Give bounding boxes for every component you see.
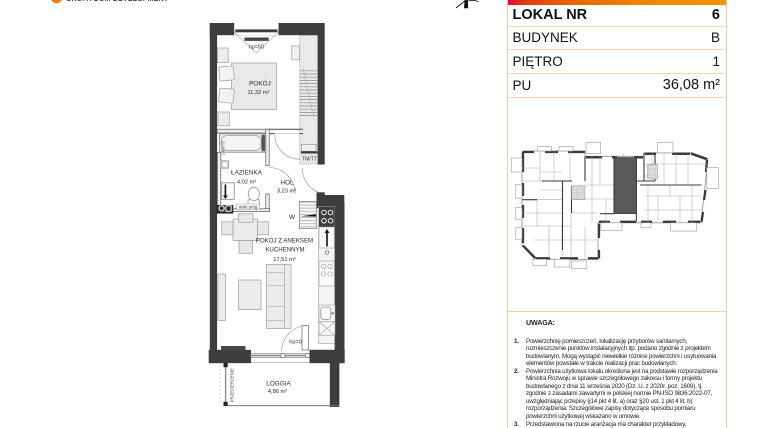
svg-text:140x70: 140x70 xyxy=(220,140,225,155)
svg-text:17,51 m²: 17,51 m² xyxy=(273,257,296,263)
svg-text:PRZEPIERZENIE: PRZEPIERZENIE xyxy=(229,368,234,402)
svg-text:11,32 m²: 11,32 m² xyxy=(247,90,269,96)
svg-text:hp=50: hp=50 xyxy=(249,44,264,50)
svg-text:3,23 m²: 3,23 m² xyxy=(277,189,296,195)
svg-text:niski próg: niski próg xyxy=(239,204,258,209)
svg-text:KUCHENNYM: KUCHENNYM xyxy=(265,247,304,254)
svg-text:W: W xyxy=(289,214,296,221)
svg-text:HOL: HOL xyxy=(280,180,294,187)
svg-text:TM/TT: TM/TT xyxy=(302,156,317,162)
svg-text:4,02 m²: 4,02 m² xyxy=(237,180,256,186)
svg-text:hp=0: hp=0 xyxy=(289,340,301,346)
svg-text:POKÓJ Z ANEKSEM: POKÓJ Z ANEKSEM xyxy=(256,238,313,245)
svg-text:ŁAZIENKA: ŁAZIENKA xyxy=(231,170,263,177)
svg-text:POKÓJ: POKÓJ xyxy=(249,79,271,88)
svg-text:O: O xyxy=(325,251,329,257)
svg-text:LOGGIA: LOGGIA xyxy=(266,381,291,388)
svg-text:4,86 m²: 4,86 m² xyxy=(268,389,287,395)
